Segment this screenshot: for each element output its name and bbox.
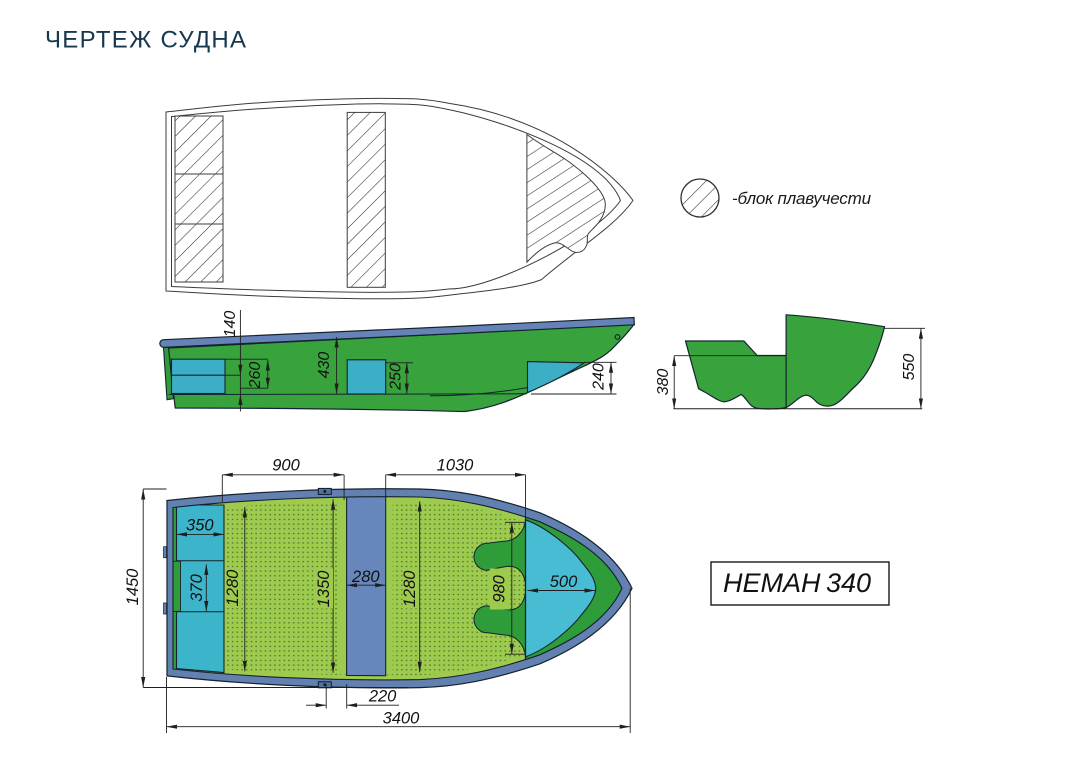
svg-text:ЧЕРТЕЖ СУДНА: ЧЕРТЕЖ СУДНА — [45, 27, 247, 54]
svg-text:3400: 3400 — [383, 710, 421, 728]
svg-text:250: 250 — [388, 363, 405, 391]
svg-text:550: 550 — [901, 354, 918, 381]
svg-text:260: 260 — [247, 362, 264, 390]
svg-text:НЕМАН: НЕМАН — [723, 568, 821, 598]
svg-text:1450: 1450 — [124, 568, 142, 606]
svg-text:140: 140 — [222, 311, 239, 338]
svg-text:380: 380 — [655, 369, 672, 396]
svg-text:340: 340 — [826, 568, 871, 598]
svg-text:350: 350 — [186, 517, 214, 535]
svg-text:980: 980 — [491, 574, 509, 602]
svg-text:370: 370 — [188, 573, 206, 601]
svg-text:280: 280 — [351, 568, 380, 586]
svg-text:900: 900 — [272, 457, 300, 475]
svg-text:1350: 1350 — [315, 570, 333, 608]
svg-text:500: 500 — [550, 573, 578, 591]
svg-text:1280: 1280 — [224, 569, 242, 607]
svg-text:220: 220 — [368, 688, 397, 706]
svg-text:1030: 1030 — [437, 457, 475, 475]
svg-text:240: 240 — [591, 363, 608, 391]
svg-text:430: 430 — [316, 352, 333, 379]
svg-text:1280: 1280 — [401, 570, 419, 608]
svg-text:-блок плавучести: -блок плавучести — [732, 189, 872, 208]
